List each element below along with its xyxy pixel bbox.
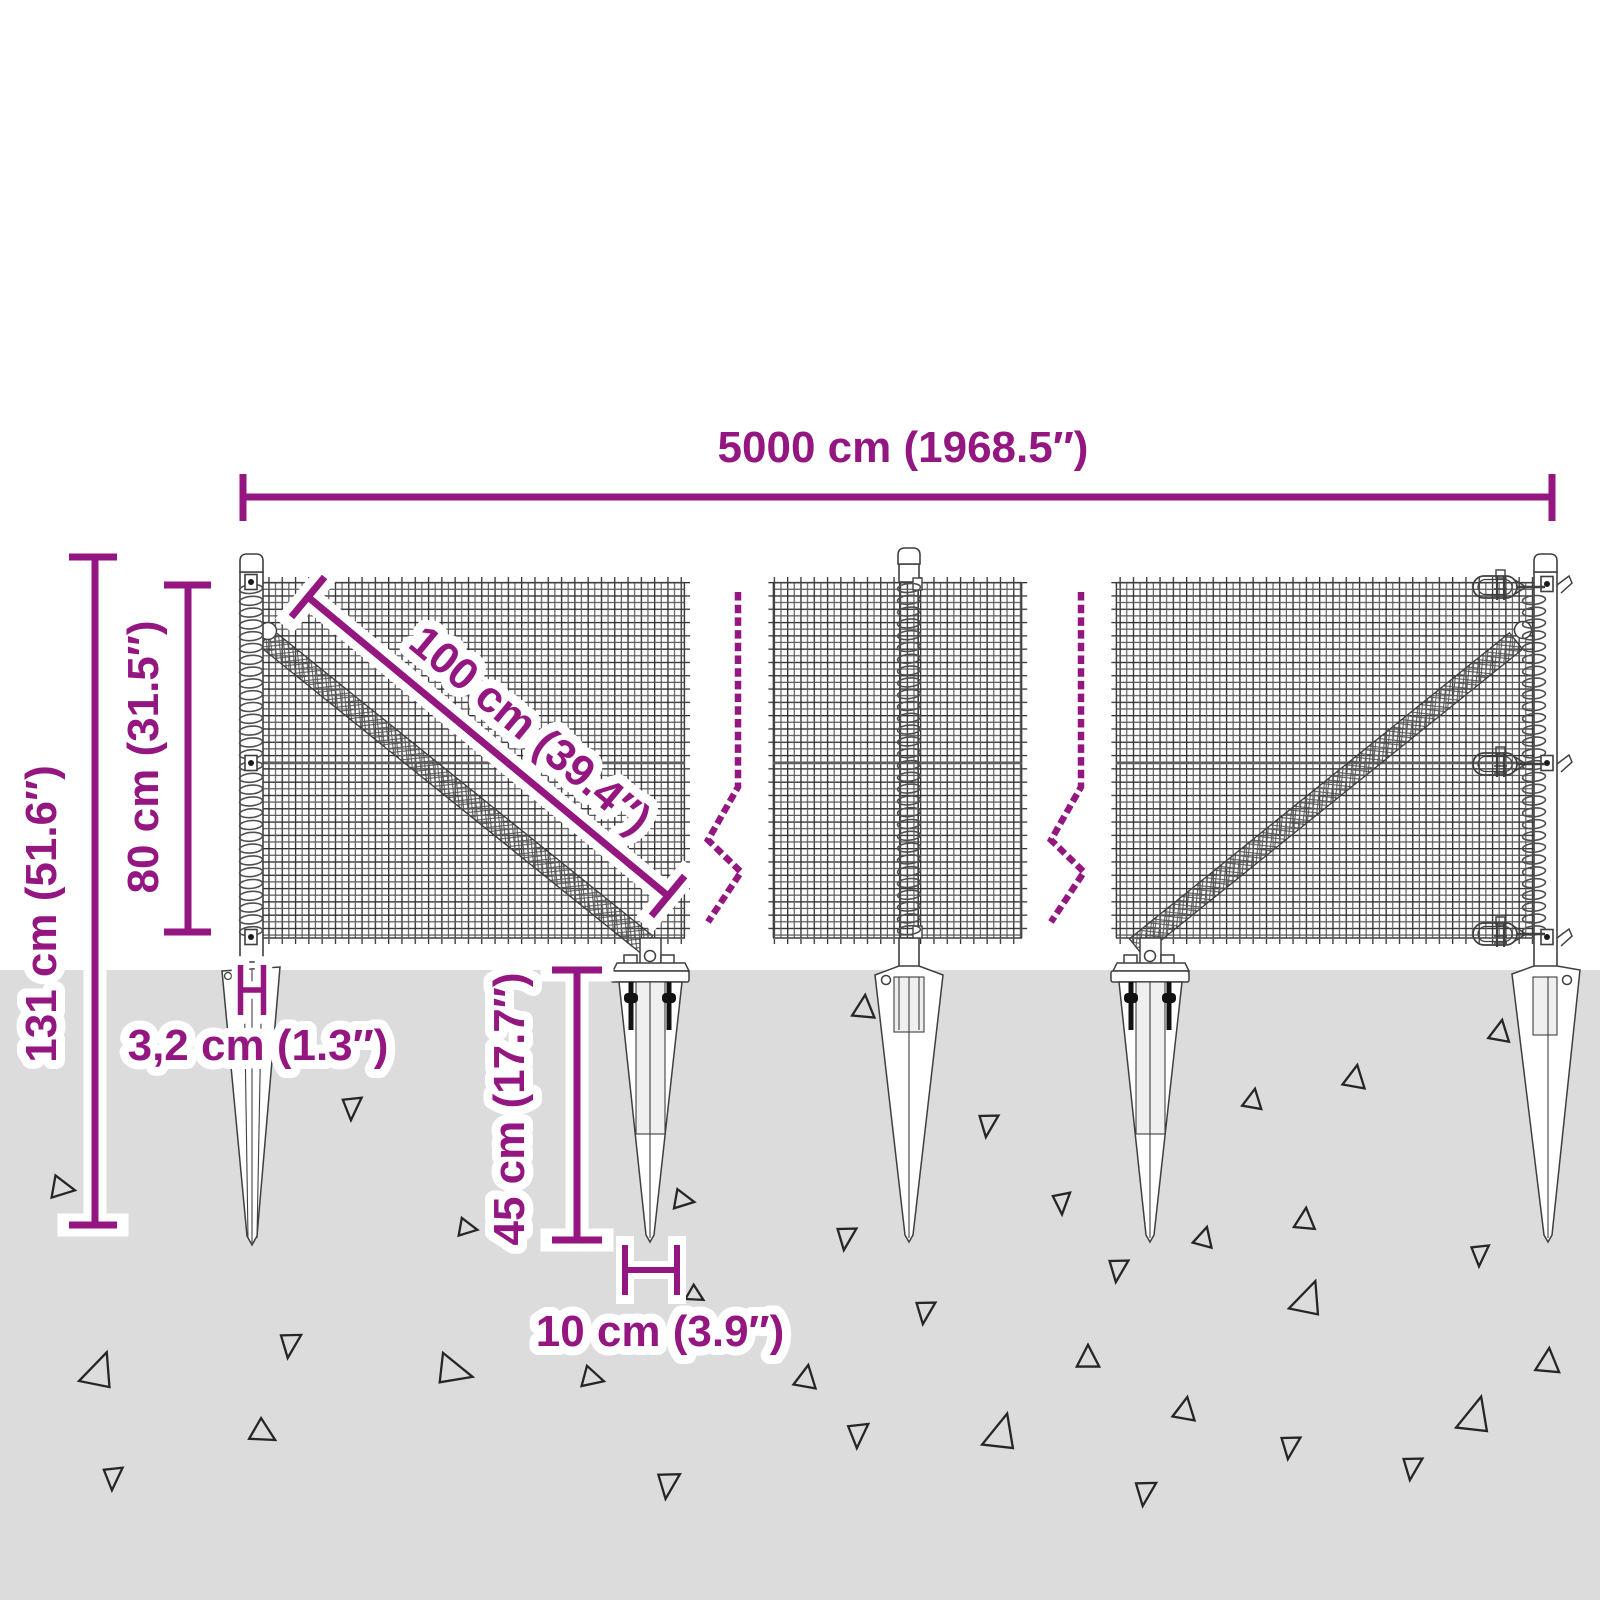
svg-text:80 cm (31.5″): 80 cm (31.5″) — [119, 620, 168, 893]
svg-text:5000 cm (1968.5″): 5000 cm (1968.5″) — [718, 423, 1089, 472]
svg-text:45 cm (17.7″): 45 cm (17.7″) — [485, 972, 534, 1245]
svg-text:3,2 cm (1.3″): 3,2 cm (1.3″) — [128, 1021, 389, 1070]
svg-text:131 cm (51.6″): 131 cm (51.6″) — [17, 765, 66, 1062]
svg-text:10 cm (3.9″): 10 cm (3.9″) — [536, 1307, 785, 1356]
